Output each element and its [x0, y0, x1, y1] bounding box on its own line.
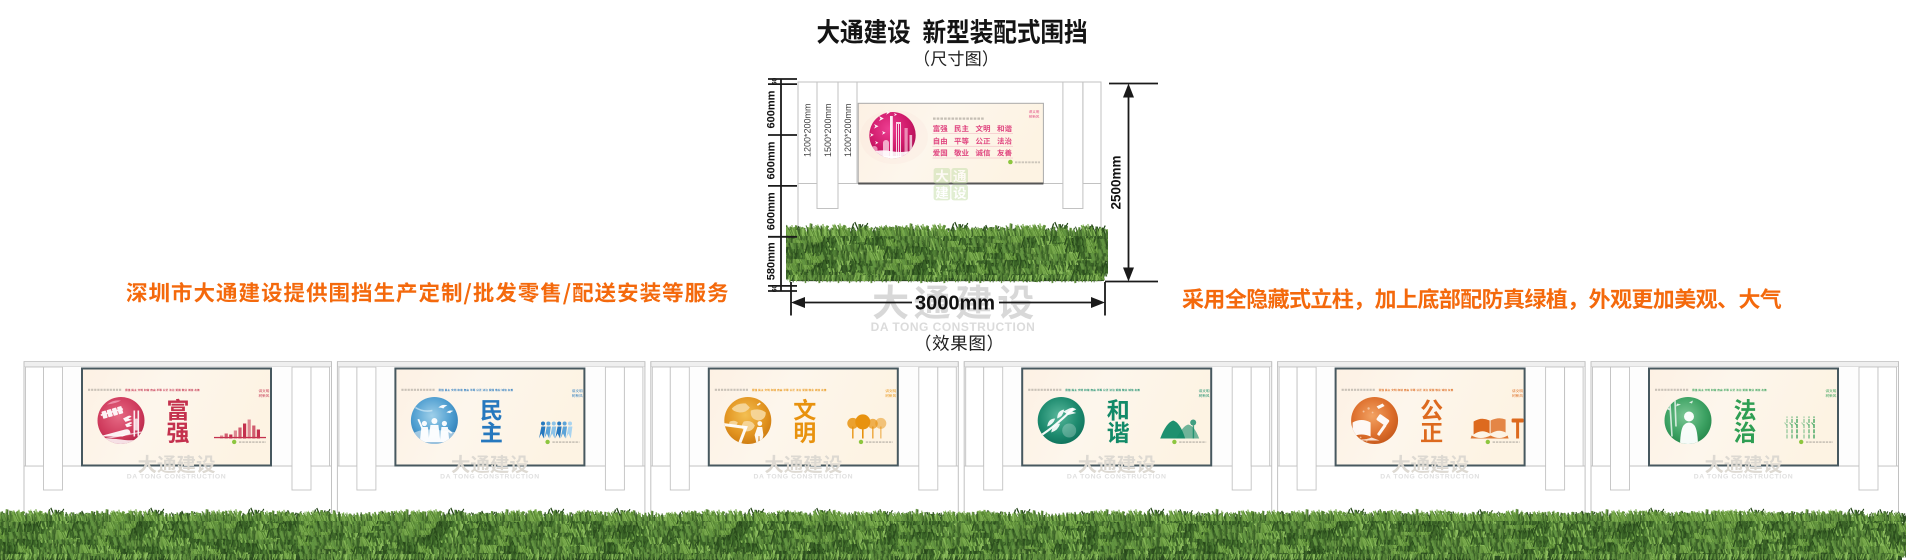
svg-text:DA TONG CONSTRUCTION: DA TONG CONSTRUCTION	[753, 474, 853, 481]
svg-text:2500mm: 2500mm	[1109, 155, 1124, 209]
svg-text:580mm: 580mm	[766, 242, 778, 280]
svg-text:60: 60	[772, 285, 779, 293]
svg-text:DA TONG CONSTRUCTION: DA TONG CONSTRUCTION	[1067, 474, 1167, 481]
svg-text:3000mm: 3000mm	[915, 293, 995, 315]
svg-text:60: 60	[772, 78, 779, 86]
svg-text:1200*200mm: 1200*200mm	[843, 103, 853, 157]
svg-text:DA TONG CONSTRUCTION: DA TONG CONSTRUCTION	[1694, 474, 1794, 481]
svg-text:DA TONG CONSTRUCTION: DA TONG CONSTRUCTION	[871, 320, 1036, 334]
svg-text:600mm: 600mm	[766, 141, 778, 179]
svg-text:600mm: 600mm	[766, 192, 778, 230]
svg-text:DA TONG CONSTRUCTION: DA TONG CONSTRUCTION	[440, 474, 540, 481]
svg-text:DA TONG CONSTRUCTION: DA TONG CONSTRUCTION	[127, 474, 227, 481]
svg-text:600mm: 600mm	[766, 90, 778, 128]
svg-text:1200*200mm: 1200*200mm	[803, 103, 813, 157]
svg-text:DA TONG CONSTRUCTION: DA TONG CONSTRUCTION	[1380, 474, 1480, 481]
svg-text:1500*200mm: 1500*200mm	[823, 103, 833, 157]
